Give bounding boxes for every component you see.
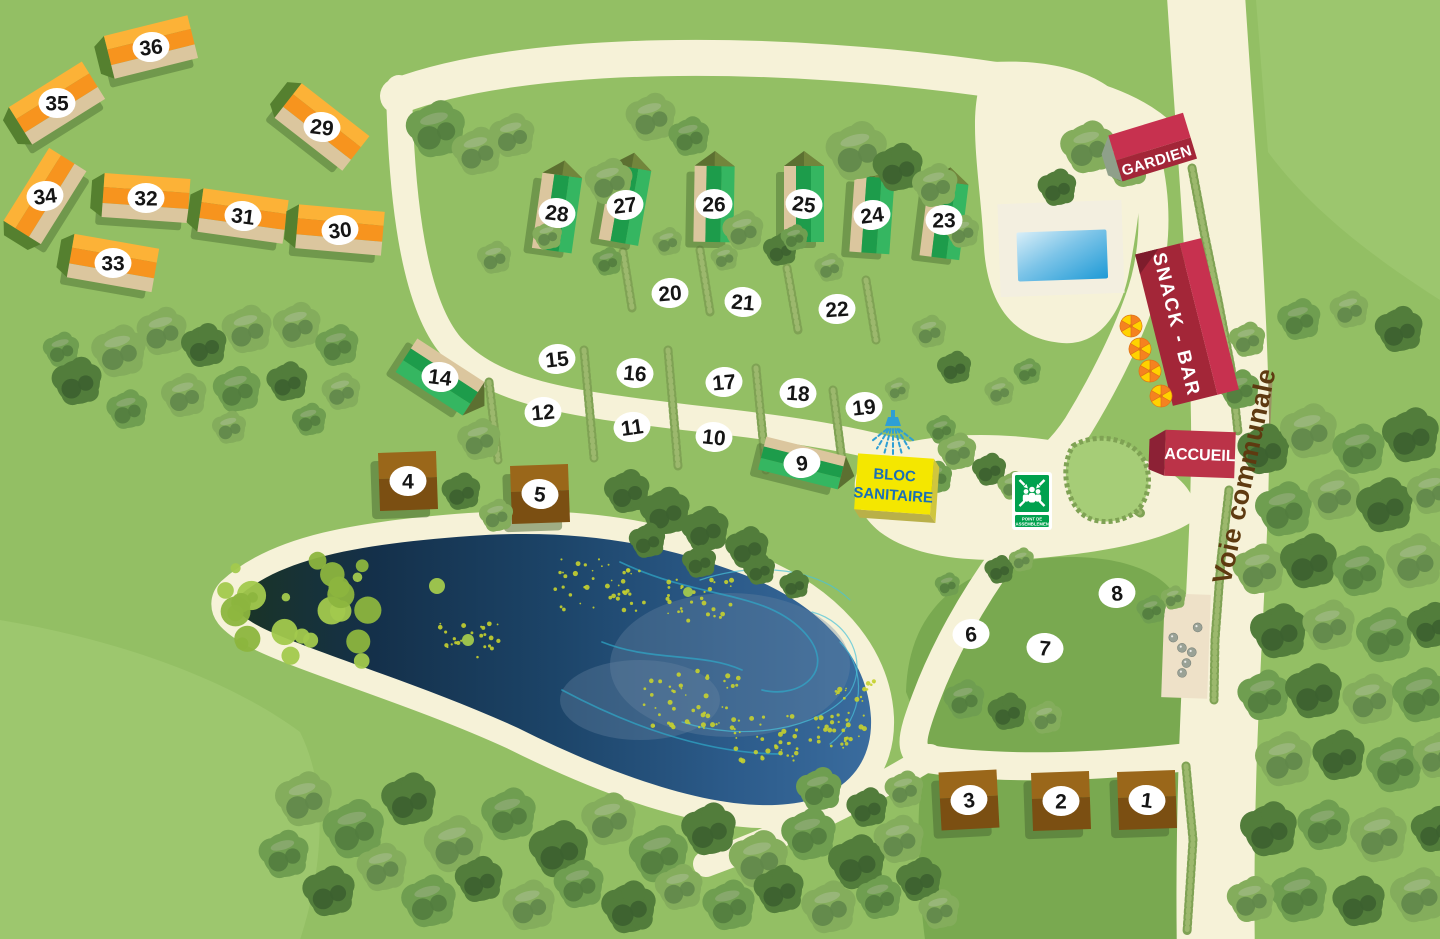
tree-shade: [383, 861, 398, 876]
algae-dot: [866, 688, 869, 691]
tree-shade: [1386, 499, 1404, 517]
algae-dot: [730, 585, 732, 587]
algae-dot: [617, 593, 620, 596]
tree-canopy: [1261, 801, 1286, 826]
algae-dot: [729, 603, 733, 607]
tree-shade: [342, 387, 354, 399]
algae-dot: [861, 700, 863, 702]
algae-dot: [454, 641, 457, 644]
tree-canopy: [891, 143, 913, 165]
algae-dot: [791, 755, 793, 757]
algae-dot: [843, 697, 846, 700]
tree-shade: [230, 424, 241, 435]
lily-pad: [327, 581, 354, 608]
algae-dot: [710, 722, 715, 727]
marker-number: 30: [327, 218, 353, 244]
tree-canopy: [1052, 168, 1069, 185]
tree-canopy: [1306, 663, 1331, 688]
lily-pad: [462, 634, 474, 646]
tree-shade: [298, 320, 313, 335]
algae-dot: [453, 637, 456, 640]
tree-shade: [1248, 335, 1259, 346]
algae-dot: [471, 631, 474, 634]
algae-dot: [627, 568, 630, 571]
tree-shade: [285, 848, 300, 863]
tree-canopy: [849, 834, 874, 859]
lily-pad: [683, 587, 693, 597]
tree-shade: [1058, 183, 1070, 195]
tree-canopy: [913, 857, 933, 877]
tree-shade: [238, 384, 253, 399]
algae-dot: [497, 624, 499, 626]
tree-shade: [820, 784, 834, 798]
algae-dot: [790, 714, 795, 719]
tree-shade: [560, 842, 578, 860]
marker-number: 24: [859, 203, 885, 229]
tree-shade: [1252, 894, 1267, 909]
reception: ACCUEIL: [1148, 429, 1236, 478]
tree-shade: [795, 234, 803, 242]
person-icon: [1029, 493, 1035, 503]
algae-dot: [760, 737, 764, 741]
algae-dot: [845, 690, 847, 692]
tree-shade: [955, 364, 966, 375]
algae-dot: [721, 706, 723, 708]
tree-shade: [690, 132, 703, 145]
tree-shade: [1046, 714, 1057, 725]
algae-dot: [601, 565, 603, 567]
algae-dot: [685, 719, 690, 724]
tree-shade: [1386, 629, 1404, 647]
tree-canopy: [772, 865, 794, 887]
algae-dot: [655, 707, 657, 709]
tree-shade: [205, 340, 219, 354]
algae-dot: [483, 645, 486, 648]
tree-shade: [965, 695, 978, 708]
algae-dot: [681, 688, 683, 690]
algae-dot: [739, 731, 741, 733]
parasol-icon: [1139, 360, 1161, 382]
tree-shade: [1000, 388, 1009, 397]
algae-dot: [735, 737, 737, 739]
algae-dot: [872, 679, 876, 683]
campsite-map: GARDIENSNACK - BARACCUEILBLOCSANITAIREPO…: [0, 0, 1440, 939]
person-icon: [1029, 487, 1035, 493]
campsite-map-stage: GARDIENSNACK - BARACCUEILBLOCSANITAIREPO…: [0, 0, 1440, 939]
tree-canopy: [1352, 876, 1375, 899]
algae-dot: [818, 715, 823, 720]
sanitary-label: BLOC: [873, 466, 917, 486]
algae-dot: [863, 715, 865, 717]
algae-dot: [837, 691, 840, 694]
algae-dot: [666, 597, 670, 601]
tree-canopy: [995, 555, 1008, 568]
tree-shade: [1420, 889, 1438, 907]
tree-shade: [62, 345, 73, 356]
marker-number: 12: [530, 401, 555, 426]
tree-shade: [748, 542, 761, 555]
algae-dot: [691, 709, 695, 713]
marker-number: 25: [791, 192, 817, 218]
sanitary-block: BLOCSANITAIRE: [852, 453, 940, 523]
lily-pad: [234, 626, 260, 652]
algae-dot: [666, 580, 671, 585]
algae-dot: [622, 571, 625, 574]
tree-canopy: [1403, 407, 1428, 432]
algae-dot: [496, 639, 500, 643]
algae-dot: [786, 754, 789, 757]
algae-dot: [715, 723, 717, 725]
lily-pad: [309, 552, 327, 570]
petanque-ball: [1182, 658, 1191, 667]
marker-number: 4: [402, 471, 414, 494]
tree-shade: [858, 856, 876, 874]
algae-dot: [592, 570, 594, 572]
tree-shade: [936, 180, 950, 194]
pool-water: [1016, 229, 1108, 281]
tree-shade: [1360, 443, 1376, 459]
algae-dot: [724, 580, 728, 584]
marker-number: 20: [657, 282, 682, 307]
algae-dot: [476, 656, 479, 659]
algae-dot: [779, 740, 783, 744]
tree-shade: [548, 232, 557, 241]
marker-number: 7: [1038, 637, 1052, 661]
tree-shade: [880, 892, 894, 906]
marker-number: 28: [544, 201, 570, 227]
pitch-marker-33: 33: [95, 248, 132, 278]
parasol-center: [1138, 347, 1142, 351]
algae-dot: [576, 561, 581, 566]
tree-canopy: [198, 323, 218, 343]
algae-dot: [658, 679, 662, 683]
marker-number: 31: [230, 204, 256, 230]
algae-dot: [616, 597, 620, 601]
tree-shade: [338, 340, 351, 353]
marker-number: 10: [701, 425, 727, 450]
tree-shade: [1310, 555, 1328, 573]
marker-number: 11: [620, 415, 646, 441]
tree-shade: [1300, 314, 1313, 327]
tree-shade: [958, 447, 970, 459]
tree-shade: [610, 176, 625, 191]
tree-shade: [310, 416, 321, 427]
algae-dot: [701, 722, 706, 727]
tree-shade: [1280, 625, 1298, 643]
tree-canopy: [456, 472, 473, 489]
tree-shade: [899, 161, 914, 176]
tree-shade: [410, 793, 427, 810]
person-icon: [1036, 489, 1041, 494]
tree-canopy: [1377, 477, 1402, 502]
algae-dot: [643, 703, 646, 706]
tree-shade: [920, 874, 934, 888]
tree-shade: [480, 874, 495, 889]
tree-canopy: [1271, 603, 1296, 628]
algae-dot: [438, 625, 443, 630]
tree-shade: [810, 828, 827, 845]
tree-canopy: [1301, 533, 1326, 558]
marker-number: 14: [427, 365, 453, 391]
tree-shade: [120, 345, 137, 362]
algae-dot: [734, 728, 736, 730]
tree-shade: [668, 238, 677, 247]
tree-shade: [437, 122, 455, 140]
algae-dot: [846, 722, 851, 727]
algae-dot: [734, 746, 739, 751]
algae-dot: [608, 564, 610, 566]
pitch-marker-32: 32: [128, 183, 165, 213]
tree-canopy: [658, 487, 680, 509]
tree-shade: [660, 847, 678, 865]
algae-dot: [734, 732, 737, 735]
pitch-marker-35: 35: [39, 88, 76, 118]
algae-dot: [676, 579, 678, 581]
tree-shade: [330, 885, 346, 901]
tree-shade: [478, 145, 493, 160]
algae-dot: [749, 716, 754, 721]
algae-dot: [562, 585, 565, 588]
tree-shade: [1370, 693, 1386, 709]
tree-canopy: [862, 787, 880, 805]
tree-shade: [305, 793, 323, 811]
algae-dot: [598, 558, 600, 560]
algae-dot: [781, 749, 783, 751]
tree-canopy: [1332, 730, 1355, 753]
tree-shade: [1152, 606, 1161, 615]
algae-dot: [673, 690, 676, 693]
algae-dot: [739, 758, 744, 763]
algae-dot: [680, 607, 683, 610]
tree-shade: [1416, 555, 1434, 573]
tree-shade: [1396, 759, 1414, 777]
tree-shade: [900, 833, 915, 848]
algae-dot: [830, 715, 834, 719]
tree-canopy: [322, 866, 345, 889]
algae-dot: [704, 693, 709, 698]
algae-dot: [860, 696, 862, 698]
person-icon: [1023, 495, 1029, 502]
tree-shade: [948, 582, 956, 590]
algae-dot: [643, 687, 646, 690]
tree-shade: [898, 387, 906, 395]
algae-dot: [711, 607, 715, 611]
algae-dot: [630, 573, 632, 575]
algae-dot: [736, 676, 741, 681]
algae-dot: [845, 718, 848, 721]
algae-dot: [703, 727, 705, 729]
tree-canopy: [950, 351, 965, 366]
petanque-court: [1161, 593, 1211, 699]
tree-shade: [1285, 753, 1303, 771]
algae-dot: [762, 716, 765, 719]
algae-dot: [642, 601, 646, 605]
algae-dot: [611, 580, 613, 582]
tree-shade: [706, 524, 721, 539]
algae-dot: [735, 684, 738, 687]
algae-dot: [680, 585, 683, 588]
algae-dot: [817, 740, 821, 744]
algae-dot: [786, 715, 788, 717]
algae-dot: [830, 720, 834, 724]
pitch-marker-2: 2: [1043, 786, 1080, 816]
algae-dot: [731, 684, 735, 688]
pitch-marker-23: 23: [926, 205, 963, 235]
lily-pad: [217, 582, 234, 599]
algae-dot: [792, 734, 797, 739]
petanque-ball: [1169, 633, 1178, 642]
algae-dot: [583, 586, 586, 589]
tree-shade: [608, 258, 617, 267]
algae-dot: [720, 612, 725, 617]
algae-dot: [573, 571, 578, 576]
parasol-icon: [1150, 385, 1172, 407]
tree-shade: [942, 426, 951, 435]
assembly-point-sign: POINT DERASSEMBLEMENT: [1012, 472, 1052, 530]
algae-dot: [618, 585, 620, 587]
tree-shade: [1265, 689, 1281, 705]
algae-dot: [623, 590, 628, 595]
algae-dot: [490, 646, 494, 650]
tree-shade: [1028, 368, 1036, 376]
tree-shade: [430, 895, 447, 912]
algae-dot: [713, 615, 716, 618]
algae-dot: [795, 728, 798, 731]
marker-number: 34: [32, 184, 58, 210]
tree-canopy: [642, 523, 658, 539]
tree-canopy: [473, 856, 494, 877]
algae-dot: [608, 596, 612, 600]
algae-dot: [709, 578, 714, 583]
petanque-ball: [1177, 643, 1186, 652]
algae-dot: [690, 601, 693, 604]
tree-shade: [628, 486, 642, 500]
algae-dot: [817, 726, 819, 728]
tree-shade: [78, 375, 93, 390]
algae-dot: [668, 700, 673, 705]
marker-number: 22: [825, 298, 850, 323]
algae-dot: [830, 745, 833, 748]
tree-shade: [710, 823, 727, 840]
algae-dot: [439, 623, 441, 625]
tree-shade: [1422, 689, 1440, 707]
algae-dot: [837, 713, 840, 716]
algae-dot: [558, 571, 561, 574]
marker-number: 26: [702, 194, 725, 217]
marker-number: 23: [932, 210, 955, 233]
tree-shade: [248, 323, 263, 338]
algae-dot: [658, 713, 661, 716]
algae-dot: [854, 697, 859, 702]
parasol-center: [1129, 324, 1133, 328]
tree-shade: [580, 878, 595, 893]
tree-shade: [830, 901, 847, 918]
algae-dot: [444, 630, 447, 633]
tree-shade: [725, 254, 733, 262]
algae-dot: [778, 732, 783, 737]
algae-dot: [489, 636, 494, 641]
marker-number: 27: [612, 193, 638, 219]
swimming-pool: [997, 200, 1124, 297]
algae-dot: [765, 748, 770, 753]
algae-dot: [667, 594, 670, 597]
tree-shade: [648, 536, 659, 547]
algae-dot: [723, 680, 726, 683]
tree-canopy: [70, 357, 92, 379]
algae-dot: [778, 751, 783, 756]
lily-pad: [231, 563, 241, 573]
parasol-center: [1159, 394, 1163, 398]
algae-dot: [794, 751, 798, 755]
tree-shade: [1265, 443, 1281, 459]
tree-shade: [930, 328, 941, 339]
plaza-green-island: [1066, 438, 1149, 521]
tree-shade: [1270, 823, 1288, 841]
algae-dot: [756, 736, 758, 738]
tree-shade: [1285, 503, 1303, 521]
lily-pad: [281, 647, 299, 665]
tree-shade: [795, 581, 804, 590]
algae-dot: [866, 681, 871, 686]
tree-shade: [905, 785, 917, 797]
tree-canopy: [790, 570, 803, 583]
tree-shade: [760, 566, 770, 576]
tree-shade: [1360, 565, 1376, 581]
tree-shade: [513, 130, 527, 144]
algae-dot: [847, 712, 849, 714]
algae-dot: [677, 672, 681, 676]
marker-number: 33: [101, 253, 124, 276]
algae-dot: [621, 579, 626, 584]
tree-shade: [355, 822, 374, 841]
petanque-ball: [1177, 668, 1186, 677]
algae-dot: [483, 633, 486, 636]
algae-dot: [579, 603, 581, 605]
algae-dot: [824, 724, 828, 728]
algae-dot: [668, 586, 671, 589]
algae-dot: [592, 607, 594, 609]
tree-canopy: [621, 469, 641, 489]
algae-dot: [706, 612, 710, 616]
algae-dot: [562, 572, 564, 574]
algae-dot: [630, 602, 633, 605]
algae-dot: [718, 722, 720, 724]
tree-shade: [1400, 324, 1415, 339]
algae-dot: [698, 726, 700, 728]
lily-pad: [346, 629, 370, 653]
algae-dot: [481, 626, 485, 630]
algae-dot: [695, 669, 700, 674]
algae-dot: [842, 747, 844, 749]
algae-dot: [788, 742, 791, 745]
algae-dot: [669, 686, 671, 688]
algae-dot: [827, 728, 832, 733]
algae-dot: [814, 716, 818, 720]
tree-shade: [480, 434, 493, 447]
tree-shade: [1340, 749, 1356, 765]
algae-dot: [686, 619, 690, 623]
tree-canopy: [551, 820, 577, 846]
tree-shade: [830, 264, 839, 273]
tree-canopy: [622, 880, 646, 904]
tree-shade: [666, 505, 681, 520]
algae-dot: [870, 683, 873, 686]
parasol-icon: [1120, 315, 1142, 337]
tree-shade: [1300, 889, 1318, 907]
algae-dot: [792, 759, 794, 761]
tree-shade: [1380, 829, 1398, 847]
marker-number: 17: [711, 371, 736, 396]
